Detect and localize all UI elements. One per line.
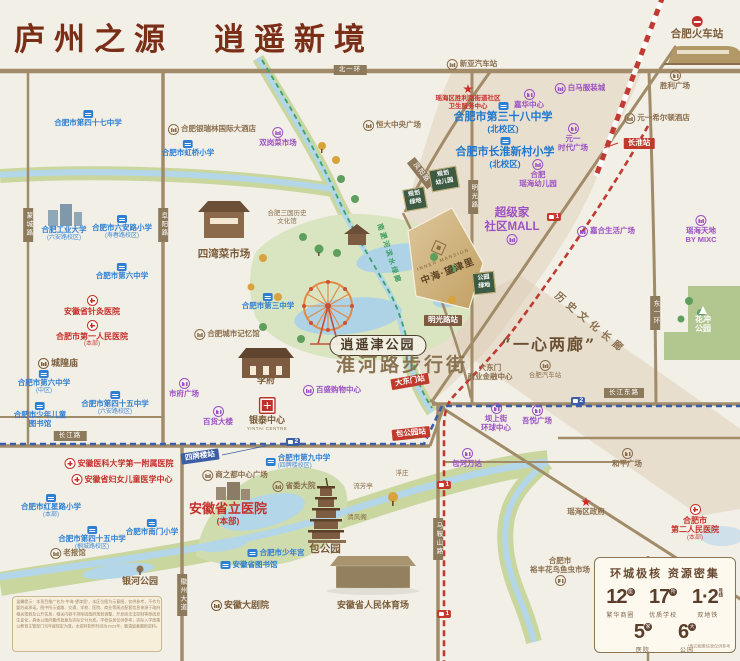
mall-label: 包河万达	[452, 448, 482, 469]
road-label-changjiang-east-rd: 长江东路	[604, 388, 644, 398]
seal-icon	[258, 397, 275, 414]
bldg-icon	[168, 124, 179, 135]
school-label: 合肥市第六中学(中区)	[18, 370, 71, 395]
stat-metro-lines: 1·2号线 双地铁	[692, 587, 724, 619]
mall-label: 白马服装城	[555, 83, 606, 94]
road-label-huizhou-ave: 徽州大道	[177, 574, 187, 616]
rail-icon	[692, 16, 703, 27]
school-icon	[39, 370, 49, 378]
stadium-label: 安徽省人民体育场	[337, 600, 409, 611]
plaza-label: 市府广场	[169, 378, 199, 399]
children-library-label: 合肥市少年儿童图书馆	[14, 402, 67, 429]
hospital-label: 安徽医科大学第一附属医院	[65, 458, 174, 469]
hospital-icon	[87, 295, 98, 306]
school-label: 合肥市虹桥小学	[162, 140, 215, 158]
mall-icon	[179, 378, 190, 389]
page-title: 庐州之源 逍遥新境	[14, 14, 374, 59]
department-store-label: 百货大楼	[203, 406, 233, 427]
mall-icon	[213, 406, 224, 417]
stats-title: 环城极核 资源密集	[595, 565, 735, 581]
university-label: 合肥工业大学(六安路校区)	[42, 226, 87, 242]
school-icon	[35, 402, 45, 410]
bldg-icon	[670, 70, 681, 81]
bldg-icon	[624, 113, 635, 124]
park-label: 包公园	[309, 543, 341, 555]
map: 庐州之源 逍遥新境 北一环阜阳路蒙城路明光路凤阳路长江路长江东路徽州大道马鞍山路…	[0, 0, 740, 661]
bldg-icon	[38, 358, 49, 369]
stats-footnote: *周边配套信息仅供参考	[688, 643, 730, 649]
community-clinic-label: 瑶海区胜利路街道社区卫生服务中心	[436, 84, 501, 110]
hotel-label: 合肥银瑞林国际大酒店	[168, 124, 256, 135]
school-icon	[266, 458, 276, 466]
mall-label: 瑶海天地BY MIXC	[685, 215, 716, 245]
bldg-icon	[363, 120, 374, 131]
planned-kindergarten-box: 规划幼儿园	[428, 166, 459, 192]
museum-label: 老报馆	[50, 548, 86, 559]
government-label: 瑶海区政府	[567, 497, 605, 517]
museum-label: 合肥城市记忆馆	[194, 329, 260, 340]
bldg-icon	[211, 600, 222, 611]
pavilion-label: 浮庄	[396, 470, 409, 478]
bldg-icon	[622, 448, 633, 459]
school-label: 合肥市红星路小学(本部)	[21, 494, 81, 519]
road-label-east-ring: 东一环	[650, 296, 660, 330]
market-label: 四湾菜市场	[198, 248, 251, 260]
stats-panel: 环城极核 资源密集 12座 繁华商圈 17所 优质学校 1·2号线 双地铁 5家…	[594, 557, 736, 653]
school-icon	[500, 137, 510, 145]
hospital-label: 合肥市第一人民医院(本部)	[56, 320, 128, 349]
plaza-label: 恒大中央广场	[363, 120, 421, 131]
stat-schools: 17所 优质学校	[649, 587, 677, 619]
station-sipailou: 四牌楼站	[180, 448, 219, 464]
metro-badge-line2: 2	[286, 438, 300, 446]
mall-icon	[533, 159, 544, 170]
road-label-fuyang-rd: 阜阳路	[158, 208, 168, 242]
school-label: 合肥市第三中学	[242, 293, 295, 311]
mall-icon	[273, 127, 284, 138]
bldg-icon	[202, 470, 213, 481]
school-icon	[183, 140, 193, 148]
one-heart-two-corridors-label: “一心两廊”	[502, 336, 596, 355]
project-logo-icon	[431, 239, 447, 255]
yintai-center-label: 银泰中心YINTAI CENTRE	[247, 397, 287, 431]
mall-icon	[532, 405, 543, 416]
metro-badge-line1: 1	[547, 213, 561, 221]
kindergarten-label: 合肥瑶海幼儿园	[519, 159, 557, 189]
theater-label: 安徽大剧院	[211, 600, 269, 611]
pavilion-label: 清风阁	[347, 514, 367, 522]
hotel-label: 元一希尔顿酒店	[624, 113, 690, 124]
hospital-icon	[690, 504, 701, 515]
plaza-label: 元一时代广场	[558, 123, 588, 153]
station-changhuai: 长淮站	[624, 138, 655, 149]
road-label-maanshan-rd: 马鞍山路	[433, 518, 443, 560]
mall-label: 嘉合生活广场	[577, 226, 635, 237]
school-label: 合肥市第四十五中学(六安路校区)	[81, 391, 149, 416]
bldg-icon	[273, 481, 284, 492]
school-icon	[83, 110, 93, 118]
mall-icon	[491, 403, 502, 414]
mall-label: 嘉华中心	[514, 89, 544, 110]
road-label-mengcheng-rd: 蒙城路	[23, 208, 33, 242]
metro-badge-line1: 1	[437, 610, 451, 618]
hospital-icon	[87, 320, 98, 331]
metro-badge-line2: 2	[571, 397, 585, 405]
hospital-label: 安徽省立医院(本部)	[189, 501, 267, 526]
park-label: 银河公园	[122, 576, 158, 587]
station-baogongyuan: 包公园站	[392, 426, 431, 441]
hospital-label: 安徽省妇女儿童医学中心	[72, 474, 173, 485]
bldg-icon	[540, 360, 551, 371]
bus-station-label: 新亚汽车站	[447, 59, 498, 70]
mall-icon	[696, 215, 707, 226]
school-label: 合肥市第四十七中学	[54, 110, 122, 128]
bldg-icon	[50, 548, 61, 559]
road-label-north-ring: 北一环	[334, 65, 367, 75]
hospital-label: 安徽省针灸医院	[64, 295, 120, 316]
road-label-changjiang-rd: 长江路	[54, 431, 87, 441]
bldg-icon	[194, 329, 205, 340]
school-icon	[117, 263, 127, 271]
school-icon	[147, 519, 157, 527]
mansion-label: 李府	[257, 375, 275, 386]
mall-icon	[303, 385, 314, 396]
bldg-icon	[555, 575, 566, 586]
mall-label: 百盛购物中心	[303, 385, 361, 396]
province-library-label: 安徽省图书馆	[221, 561, 278, 570]
school-icon	[221, 561, 231, 569]
school-label: 合肥市第九中学(四牌楼校区)	[266, 454, 331, 470]
mall-label: 坝上街环球中心	[481, 403, 511, 433]
finance-center-label: 大东门商业金融中心	[468, 364, 513, 382]
huachong-park-label: 花冲公园	[695, 306, 711, 334]
huaihe-walking-street-label: 淮河路步行街	[336, 354, 468, 376]
mall-icon	[462, 448, 473, 459]
mall-icon	[568, 123, 579, 134]
bus-station-label: 合肥汽车站	[529, 360, 562, 380]
temple-label: 城隍庙	[38, 358, 78, 369]
tree-icon	[699, 306, 707, 314]
mall-label: 超级家社区MALL	[485, 207, 540, 246]
stat-parks: 6大 公园	[678, 622, 696, 654]
mall-icon	[507, 234, 518, 245]
mall-icon	[555, 83, 566, 94]
hospital-icon	[65, 458, 76, 469]
mall-icon	[524, 89, 535, 100]
plaza-label: 胜利广场	[660, 70, 690, 91]
planned-green-box: 规划绿地	[402, 186, 427, 211]
youth-palace-label: 合肥市少年宫	[248, 549, 305, 558]
school-icon	[110, 391, 120, 399]
stat-hospitals: 5家 医院	[634, 622, 652, 654]
compound-label: 省委大院	[273, 481, 316, 492]
hospital-label: 合肥市第二人民医院(本部)	[671, 504, 719, 542]
plaza-label: 和平广场	[612, 448, 642, 469]
school-label: 合肥市南门小学	[126, 519, 179, 537]
school-label: 合肥市第六中学	[96, 263, 149, 281]
star-icon	[463, 84, 473, 94]
station-mingguanglu: 明光路站	[424, 315, 462, 326]
star-icon	[581, 497, 591, 507]
stat-business-circles: 12座 繁华商圈	[606, 587, 634, 619]
pavilion-label: 流芳亭	[353, 483, 373, 491]
hospital-icon	[72, 474, 83, 485]
disclaimer-text: 温馨提示：本项目推广名为“中海·望津里”，本区位图为示意图，仅供参考，不作为要约…	[13, 597, 162, 633]
mall-label: 吾悦广场	[522, 405, 552, 426]
metro-badge-line1: 1	[437, 481, 451, 489]
school-label: 合肥市六安路小学(寿春路校区)	[92, 215, 152, 240]
museum-label: 合肥三国历史文化馆	[268, 210, 307, 225]
disclaimer-box: 温馨提示：本项目推广名为“中海·望津里”，本区位图为示意图，仅供参考，不作为要约…	[12, 596, 162, 652]
bldg-icon	[447, 59, 458, 70]
school-icon	[248, 549, 258, 557]
school-icon	[117, 215, 127, 223]
market-label: 双岗菜市场	[259, 127, 297, 148]
railway-station-label: 合肥火车站	[671, 16, 724, 40]
school-icon	[87, 526, 97, 534]
school-icon	[263, 293, 273, 301]
market-label: 合肥市裕丰花鸟鱼虫市场	[530, 557, 590, 587]
school-icon	[46, 494, 56, 502]
plaza-label: 商之都中心广场	[202, 470, 268, 481]
mall-icon	[577, 226, 588, 237]
